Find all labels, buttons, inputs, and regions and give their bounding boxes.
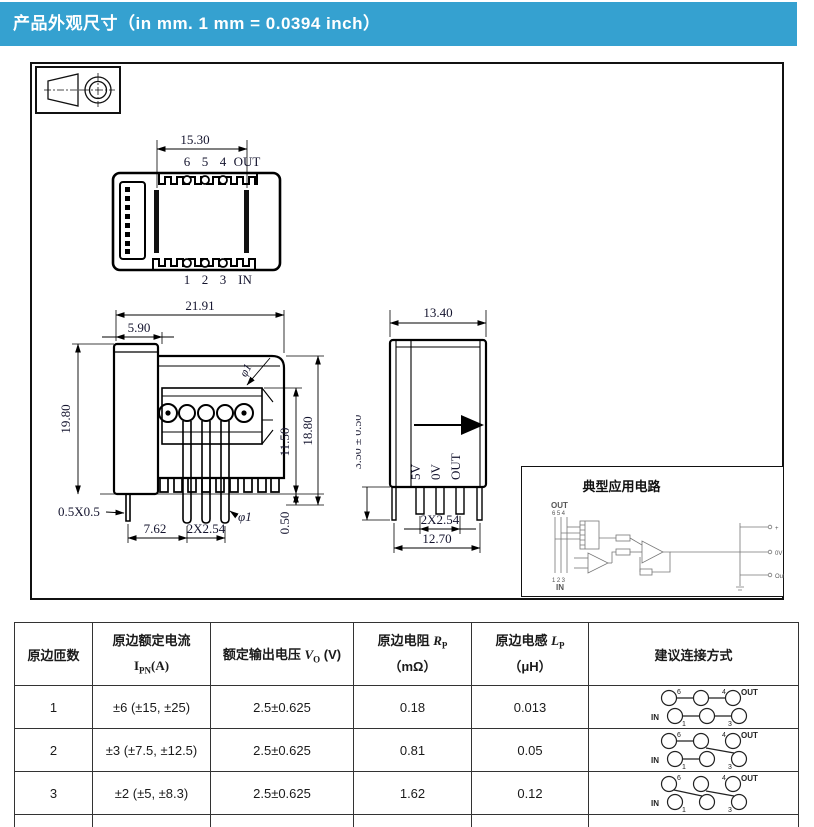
circuit-terminal-0v: 0V	[775, 551, 782, 557]
cell-connection-1turn: 6 4 OUT IN 1 3	[589, 686, 799, 729]
application-circuit-box: 典型应用电路 OUT 654	[521, 466, 784, 597]
out-label: OUT	[234, 154, 261, 169]
pin-label-0v: 0V	[428, 464, 443, 481]
dim-total-width: 21.91	[185, 298, 214, 313]
conn-pin-6: 6	[677, 689, 681, 696]
conn-pin-6: 6	[677, 732, 681, 739]
connection-diagram-2turns: 6 4 OUT IN 1 3	[649, 729, 769, 771]
col-header-resistance: 原边电阻 RP （mΩ）	[354, 623, 472, 686]
projection-symbol-box	[35, 66, 121, 114]
pin-label-5v: 5V	[408, 464, 423, 481]
circuit-terminal-plus: +	[775, 526, 779, 532]
conn-pin-3: 3	[728, 807, 732, 814]
projection-symbol-icon	[37, 68, 119, 112]
dim-standoff: 0.50	[277, 512, 292, 535]
cell-resistance: 0.81	[354, 729, 472, 772]
cell-voltage: 2.5±0.625	[211, 686, 354, 729]
cell-connection-3turns: 6 4 OUT IN 1 3	[589, 772, 799, 815]
conn-pin-4: 4	[722, 732, 726, 739]
pin-label-3: 3	[220, 272, 227, 287]
cell-current: ±6 (±15, ±25)	[93, 686, 211, 729]
dim-step-width: 5.90	[128, 320, 151, 335]
dim-inner-height: 11.50	[277, 428, 292, 457]
dim-height-right: 18.80	[300, 416, 315, 445]
pin-label-1: 1	[184, 272, 191, 287]
table-row: 2 ±3 (±7.5, ±12.5) 2.5±0.625 0.81 0.05 6…	[15, 729, 799, 772]
col-header-connection: 建议连接方式	[589, 623, 799, 686]
section-title: 产品外观尺寸（in mm. 1 mm = 0.0394 inch）	[13, 14, 380, 33]
cell-voltage: 2.5±0.625	[211, 772, 354, 815]
pin-label-2: 2	[202, 272, 209, 287]
cell-current: ±3 (±7.5, ±12.5)	[93, 729, 211, 772]
cell-current: ±2 (±5, ±8.3)	[93, 772, 211, 815]
dim-height-left: 19.80	[58, 404, 73, 433]
conn-pin-3: 3	[728, 764, 732, 771]
conn-in: IN	[651, 713, 659, 722]
dim-square-pin: 0.5X0.5	[58, 504, 100, 519]
cell-resistance: 0.18	[354, 686, 472, 729]
col-header-current: 原边额定电流 IPN(A)	[93, 623, 211, 686]
table-row: 3 ±2 (±5, ±8.3) 2.5±0.625 1.62 0.12 6 4 …	[15, 772, 799, 815]
cell-voltage: 2.5±0.625	[211, 729, 354, 772]
cell-turns: 2	[15, 729, 93, 772]
conn-out: OUT	[741, 731, 758, 740]
conn-in: IN	[651, 756, 659, 765]
pin-label-out: OUT	[448, 453, 463, 480]
front-view-drawing: 21.91 5.90	[56, 292, 354, 593]
cell-resistance: 1.62	[354, 772, 472, 815]
conn-out: OUT	[741, 688, 758, 697]
cell-turns: 1	[15, 686, 93, 729]
table-row: 1 ±6 (±15, ±25) 2.5±0.625 0.18 0.013 6 4…	[15, 686, 799, 729]
dim-pin-length: 3.50 ± 0.50	[356, 415, 364, 470]
in-label: IN	[238, 272, 252, 287]
conn-in: IN	[651, 799, 659, 808]
datasheet-page: 产品外观尺寸（in mm. 1 mm = 0.0394 inch） 15.30	[0, 0, 814, 827]
conn-pin-1: 1	[682, 721, 686, 728]
cell-inductance: 0.05	[472, 729, 589, 772]
cell-turns: 3	[15, 772, 93, 815]
conn-pin-4: 4	[722, 689, 726, 696]
table-header-row: 原边匝数 原边额定电流 IPN(A) 额定输出电压 VO (V) 原边电阻 RP…	[15, 623, 799, 686]
pin-label-4: 4	[220, 154, 227, 169]
dim-top-width: 15.30	[180, 132, 209, 147]
conn-out: OUT	[741, 774, 758, 783]
conn-pin-4: 4	[722, 775, 726, 782]
col-header-voltage: 额定输出电压 VO (V)	[211, 623, 354, 686]
cell-inductance: 0.013	[472, 686, 589, 729]
dim-side-bottom: 12.70	[422, 531, 451, 546]
circuit-out-label: OUT	[551, 501, 568, 510]
dim-pitch-b: 2X2.54	[187, 521, 226, 536]
dim-pin-dia: φ1	[238, 509, 252, 524]
circuit-out-pins: 654	[552, 511, 567, 517]
pin-label-5: 5	[202, 154, 209, 169]
dim-pitch-a: 7.62	[144, 521, 167, 536]
col-header-inductance: 原边电感 LP （μH）	[472, 623, 589, 686]
circuit-in-label: IN	[556, 583, 564, 591]
top-view-drawing: 15.30 6 5 4 OUT	[95, 118, 305, 301]
dim-side-width: 13.40	[423, 305, 452, 320]
side-view-drawing: 13.40 5V 0V OUT 3.50 ± 0.50	[356, 292, 514, 587]
application-circuit-diagram: OUT 654	[544, 499, 784, 591]
connection-diagram-3turns: 6 4 OUT IN 1 3	[649, 772, 769, 814]
section-header: 产品外观尺寸（in mm. 1 mm = 0.0394 inch）	[0, 2, 797, 46]
cell-connection-2turns: 6 4 OUT IN 1 3	[589, 729, 799, 772]
pin-label-6: 6	[184, 154, 191, 169]
application-circuit-title: 典型应用电路	[522, 476, 783, 495]
circuit-terminal-out: Out	[775, 574, 784, 580]
dim-side-pitch: 2X2.54	[421, 512, 460, 527]
conn-pin-1: 1	[682, 807, 686, 814]
conn-pin-3: 3	[728, 721, 732, 728]
col-header-turns: 原边匝数	[15, 623, 93, 686]
conn-pin-1: 1	[682, 764, 686, 771]
dim-hole-dia: φ1	[236, 361, 254, 379]
cell-inductance: 0.12	[472, 772, 589, 815]
table-row-clipped	[15, 815, 799, 827]
spec-table: 原边匝数 原边额定电流 IPN(A) 额定输出电压 VO (V) 原边电阻 RP…	[14, 622, 799, 827]
connection-diagram-parallel: 6 4 OUT IN 1 3	[649, 686, 769, 728]
conn-pin-6: 6	[677, 775, 681, 782]
